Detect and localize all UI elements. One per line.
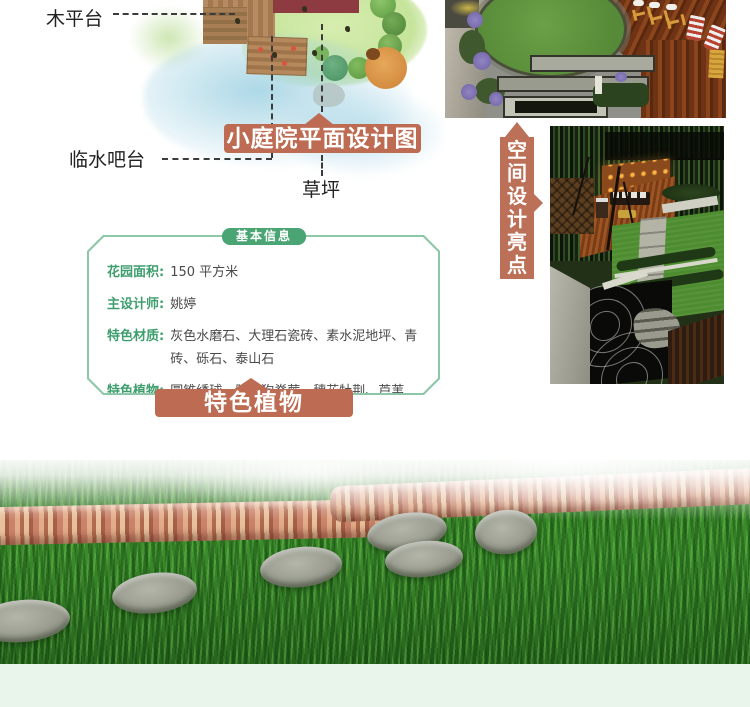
photo-night-garden <box>550 126 724 384</box>
bottom-heading: 让小花园四季有花 <box>77 697 525 707</box>
photo-lawn-stepping-stones <box>0 415 750 664</box>
cushion <box>633 0 644 6</box>
info-row: 特色材质: 灰色水磨石、大理石瓷砖、素水泥地坪、青砖、砾石、泰山石 <box>107 325 422 371</box>
plan-water-bar-deck <box>246 36 307 76</box>
callout-line <box>321 155 323 176</box>
hydrangea <box>489 92 503 106</box>
hydrangea <box>461 84 477 100</box>
info-box: 花园面积: 150 平方米 主设计师: 姚婷 特色材质: 灰色水磨石、大理石瓷砖… <box>87 235 440 395</box>
callout-line <box>113 13 235 15</box>
photo-garden-aerial <box>445 0 726 118</box>
info-row-value: 灰色水磨石、大理石瓷砖、素水泥地坪、青砖、砾石、泰山石 <box>170 325 422 371</box>
callout-label-wood-deck: 木平台 <box>46 4 103 31</box>
plants-banner: 特色植物 <box>155 389 353 417</box>
info-box-content: 花园面积: 150 平方米 主设计师: 姚婷 特色材质: 灰色水磨石、大理石瓷砖… <box>89 237 438 393</box>
info-row: 花园面积: 150 平方米 <box>107 261 422 284</box>
cushion <box>649 2 660 8</box>
plan-symbol <box>345 26 350 32</box>
sofa-cushions <box>613 192 647 198</box>
plan-structure <box>273 0 359 13</box>
callout-line <box>162 158 272 160</box>
garden-article-page: 木平台 临水吧台 草坪 小庭院平面设计图 <box>0 0 750 707</box>
plan-flower-dot <box>282 61 287 66</box>
hydrangea <box>473 52 491 70</box>
callout-label-water-bar: 临水吧台 <box>69 145 145 172</box>
callout-label-lawn: 草坪 <box>302 175 340 202</box>
info-row-label: 花园面积: <box>107 261 164 284</box>
plan-symbol <box>235 18 240 24</box>
lattice-fence <box>550 178 594 234</box>
plan-banner: 小庭院平面设计图 <box>224 124 421 153</box>
courtyard-plan-drawing <box>130 0 445 205</box>
highlight-banner-arrow-up <box>505 122 529 137</box>
callout-line <box>321 24 323 112</box>
info-row: 主设计师: 姚婷 <box>107 293 422 316</box>
hydrangea <box>467 12 483 28</box>
hydrangea <box>615 72 627 82</box>
yellow-mat <box>708 50 724 79</box>
info-row-label: 主设计师: <box>107 293 164 316</box>
dark-fence <box>605 132 724 160</box>
plan-rock <box>313 83 345 107</box>
highlight-banner-label: 空间设计亮点 <box>506 139 528 277</box>
gray-wall <box>550 266 590 384</box>
coffee-table <box>618 210 636 218</box>
plan-tree-shadow <box>366 48 380 60</box>
highlight-banner-arrow-right <box>534 194 543 212</box>
plan-symbol <box>302 6 307 12</box>
info-row-label: 特色材质: <box>107 325 164 371</box>
chair <box>596 198 608 218</box>
plan-symbol <box>312 50 317 56</box>
plan-tree <box>382 12 406 36</box>
info-row-value: 150 平方米 <box>170 261 238 284</box>
water-channel <box>515 101 597 113</box>
white-post <box>595 76 602 94</box>
cushion <box>666 4 677 10</box>
info-row-value: 姚婷 <box>170 293 196 316</box>
highlight-banner: 空间设计亮点 <box>500 137 534 279</box>
plan-flower-dot <box>258 47 263 52</box>
plan-flower-dot <box>291 46 296 51</box>
stone-slab <box>530 55 655 72</box>
info-box-tab: 基本信息 <box>222 228 306 245</box>
